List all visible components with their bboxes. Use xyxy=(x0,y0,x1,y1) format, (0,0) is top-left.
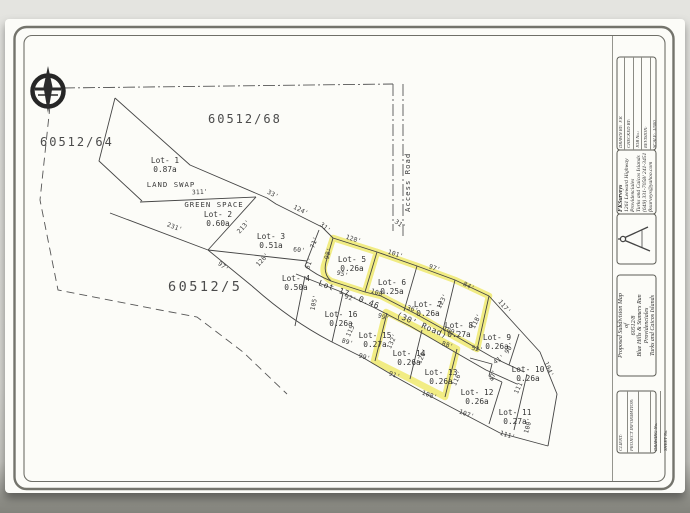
footer-number-field: DRAWING No. xyxy=(650,391,660,453)
footer-number-field: SHEET No. xyxy=(660,391,670,453)
footer-field: PROJECT INFORMATION: xyxy=(628,391,639,453)
compass-icon xyxy=(33,66,64,113)
titleblock-field-row: SCALE:1/500 xyxy=(651,57,658,150)
dimension-label: 311' xyxy=(192,189,208,197)
parcel-number: 60512/68 xyxy=(208,112,282,126)
titleblock-firm: FKSurveys1261 Leeward HighwayProvidencia… xyxy=(617,150,656,214)
dimension-label: 97' xyxy=(216,260,230,273)
scanned-survey-sheet: { "map": { "parcel_labels": [ {"text": "… xyxy=(0,0,690,513)
lot-name: Lot- 6 xyxy=(378,278,406,287)
dimension-label: 105' xyxy=(309,294,319,311)
titleblock-field-row: REVISION: xyxy=(642,57,650,150)
dimension-label: 71' xyxy=(309,236,320,250)
dimension-label: 126' xyxy=(255,252,271,269)
dimension-label: 231' xyxy=(166,221,183,233)
firm-address-line: fksurveys@yahoo.com xyxy=(648,148,654,212)
lot-area: 0.87a xyxy=(153,165,177,174)
titleblock-title: Proposed Subdivision Mapof60512/8Blue Hi… xyxy=(617,275,656,376)
lot-name: Lot- 11 xyxy=(499,408,532,417)
dimension-label: 41' xyxy=(492,353,506,366)
parcel-number: 60512/64 xyxy=(40,135,114,149)
dimension-label: 60' xyxy=(293,246,306,254)
dimension-label: 213' xyxy=(236,219,252,236)
titleblock-field-row: JOB No.: xyxy=(634,57,642,150)
lot-name: Lot- 2 xyxy=(204,210,232,219)
titleblock-fields: DRAWN BY:F.KCHECKED BY:JOB No.:REVISION:… xyxy=(617,57,656,150)
dimension-label: 107' xyxy=(458,409,475,421)
titleblock-field-row: DRAWN BY:F.K xyxy=(617,57,625,150)
lot-area: 0.26a xyxy=(429,377,453,386)
lot-area: 0.26a xyxy=(416,309,440,318)
lot-area: 0.50a xyxy=(284,283,308,292)
lot-name: Lot- 12 xyxy=(461,388,494,397)
dimension-label: 31' xyxy=(318,221,332,234)
dimension-label: 31' xyxy=(393,218,407,231)
lot-name: Lot- 15 xyxy=(359,331,392,340)
dimension-label: 111' xyxy=(499,430,516,441)
divider-logo-icon xyxy=(617,214,656,264)
lot-name: Lot- 3 xyxy=(257,232,285,241)
dimension-label: 123' xyxy=(436,293,449,310)
lot-area: 0.27a xyxy=(503,417,527,426)
lot-area: 0.60a xyxy=(206,219,230,228)
lot-name: Lot- 5 xyxy=(338,255,366,264)
lot-area: 0.27a xyxy=(363,340,387,349)
dimension-label: 52' xyxy=(471,345,484,354)
lot-area: 0.51a xyxy=(259,241,283,250)
titleblock-footer: CLIENT:PROJECT INFORMATION:DRAWING No.SH… xyxy=(617,391,656,453)
dimension-label: 89' xyxy=(341,337,355,347)
dimension-label: 61' xyxy=(304,257,315,271)
lot-name: Lot- 4 xyxy=(282,274,310,283)
dimension-label: 99' xyxy=(358,352,372,362)
map-annotation: GREEN SPACE xyxy=(184,200,243,209)
lot-name: Lot- 13 xyxy=(425,368,458,377)
titleblock-logo xyxy=(617,214,656,264)
dimension-label: 98' xyxy=(323,247,333,261)
dimension-label: 88' xyxy=(441,340,455,350)
dimension-label: 124' xyxy=(292,204,309,217)
lot-name: Lot- 9 xyxy=(483,333,511,342)
parcel-number: 60512/5 xyxy=(168,279,242,295)
footer-field: CLIENT: xyxy=(617,391,628,453)
lot-name: Lot- 10 xyxy=(512,365,545,374)
subdivision-map: 60512/6860512/6460512/5 Lot- 10.87aLot- … xyxy=(0,0,690,513)
sheet-title-line: Turks and Caicos Islands xyxy=(650,275,656,376)
lot-name: Lot- 1 xyxy=(151,156,179,165)
lot-area: 0.26a xyxy=(465,397,489,406)
map-annotation: LAND SWAP xyxy=(147,180,196,189)
titleblock-field-row: CHECKED BY: xyxy=(625,57,633,150)
lot-name: Lot- 16 xyxy=(325,310,358,319)
map-annotation: Access Road xyxy=(403,153,412,212)
